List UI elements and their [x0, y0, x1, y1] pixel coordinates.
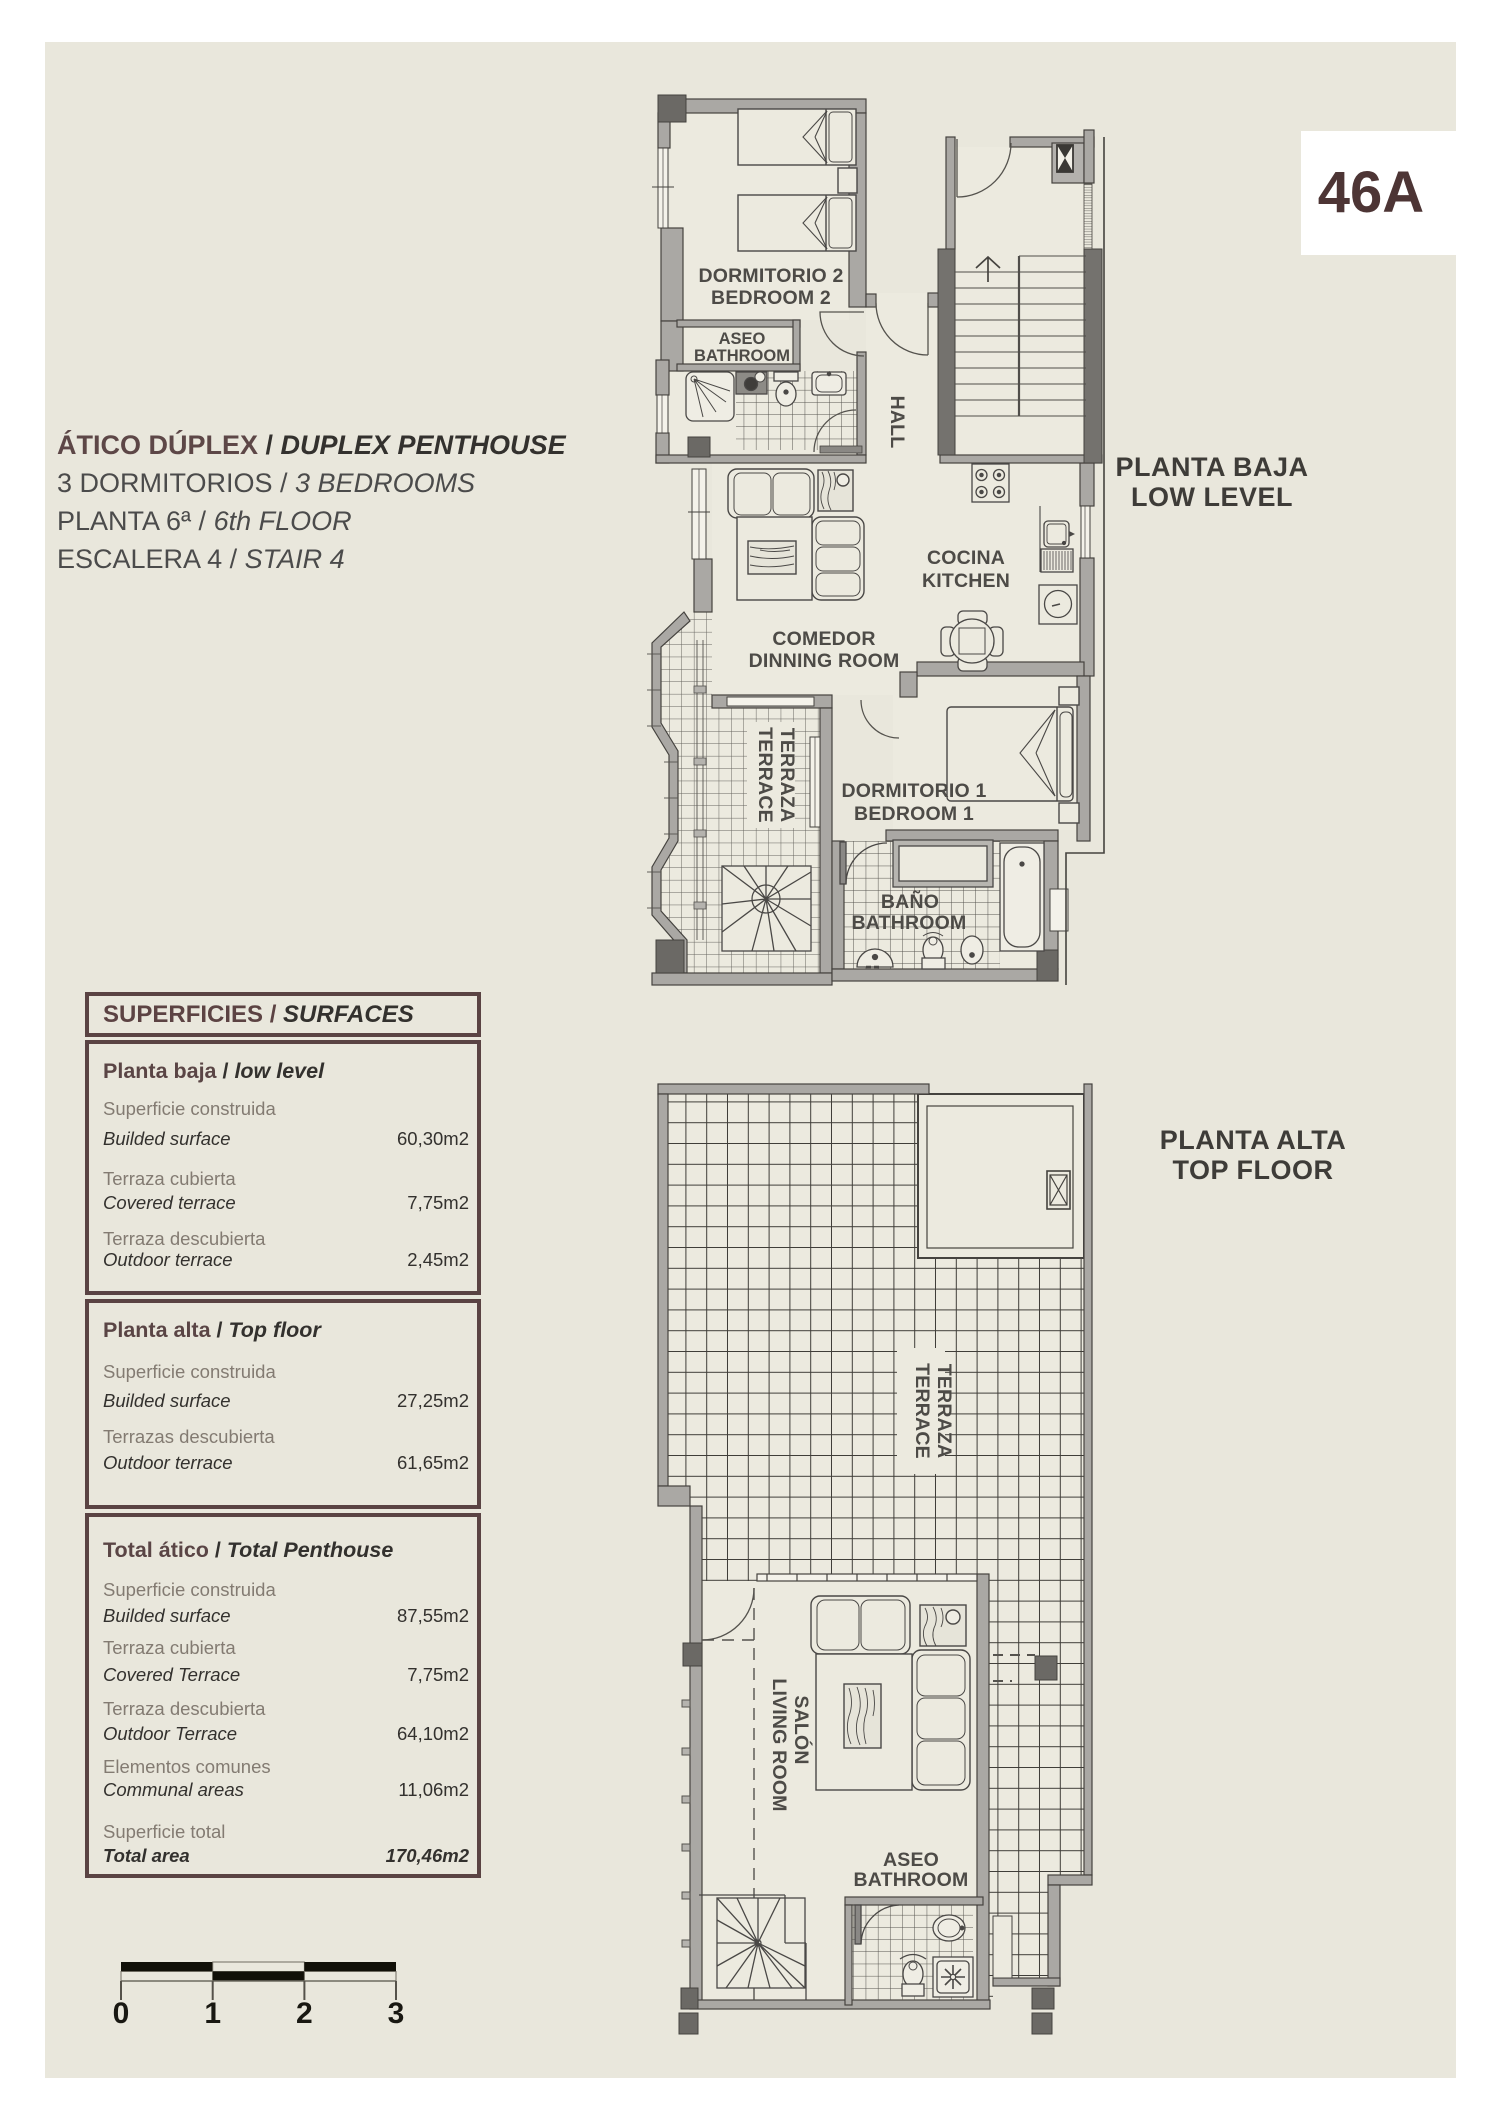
svg-text:TERRACE: TERRACE: [911, 1363, 933, 1459]
svg-text:COMEDOR: COMEDOR: [772, 628, 875, 650]
svg-text:BATHROOM: BATHROOM: [852, 912, 967, 934]
svg-text:BEDROOM 2: BEDROOM 2: [711, 287, 831, 309]
svg-text:ASEO: ASEO: [883, 1849, 939, 1871]
svg-text:2: 2: [296, 1997, 313, 2030]
svg-text:BATHROOM: BATHROOM: [694, 347, 790, 365]
svg-text:LIVING ROOM: LIVING ROOM: [768, 1678, 790, 1811]
svg-text:BEDROOM 1: BEDROOM 1: [854, 803, 974, 825]
svg-text:1: 1: [204, 1997, 221, 2030]
svg-text:TERRAZA: TERRAZA: [776, 728, 798, 823]
svg-text:KITCHEN: KITCHEN: [922, 570, 1010, 592]
svg-text:SALÓN: SALÓN: [790, 1695, 814, 1764]
svg-text:3: 3: [388, 1997, 405, 2030]
svg-text:BATHROOM: BATHROOM: [854, 1869, 969, 1891]
svg-text:DINNING ROOM: DINNING ROOM: [749, 650, 900, 672]
svg-text:HALL: HALL: [886, 396, 908, 449]
svg-text:0: 0: [113, 1997, 130, 2030]
svg-text:DORMITORIO 2: DORMITORIO 2: [698, 265, 843, 287]
svg-text:TERRACE: TERRACE: [754, 727, 776, 823]
svg-text:DORMITORIO 1: DORMITORIO 1: [841, 780, 986, 802]
svg-text:TERRAZA: TERRAZA: [933, 1364, 955, 1459]
svg-text:ASEO: ASEO: [719, 330, 766, 348]
svg-text:BAÑO: BAÑO: [881, 890, 939, 913]
svg-text:COCINA: COCINA: [927, 547, 1005, 569]
